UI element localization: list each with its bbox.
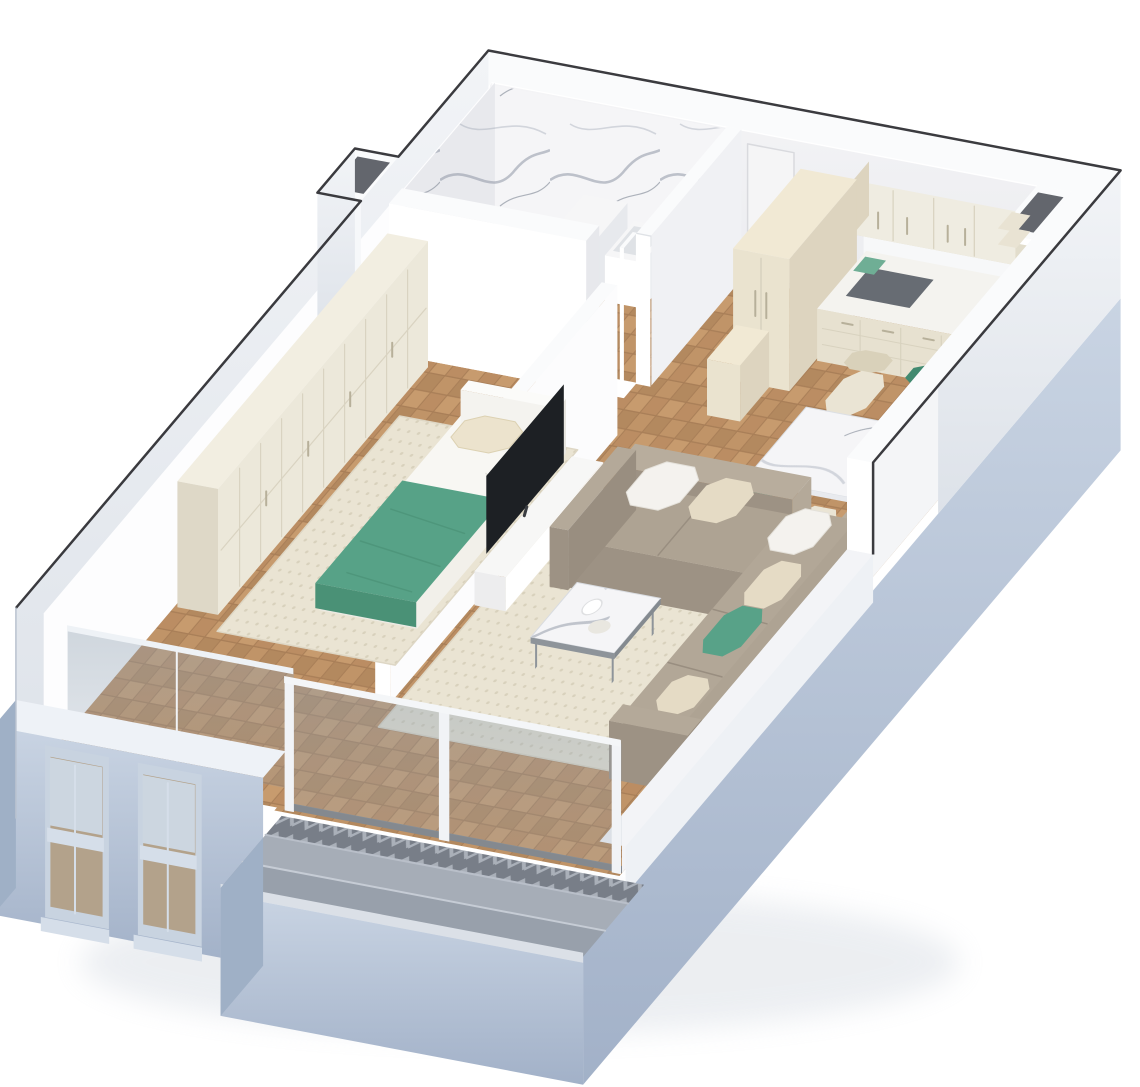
sofa-armrest-left-front: [550, 527, 569, 591]
apartment-3d-floorplan: [0, 0, 1140, 1087]
tv-console-front: [475, 571, 506, 611]
glass-mullion: [439, 706, 449, 842]
kitchen-low-unit-front: [707, 359, 740, 421]
glass-mullion: [285, 676, 294, 812]
glass-mullion: [612, 738, 621, 874]
bathroom-door-jamb: [620, 247, 624, 398]
right-wall-step: [847, 458, 873, 555]
floorplan-screenshot: [0, 0, 1140, 1087]
front-wall-west-cap: [0, 700, 16, 915]
bathroom-right-wall-cap: [636, 234, 651, 387]
wardrobe-endcap: [177, 481, 218, 615]
